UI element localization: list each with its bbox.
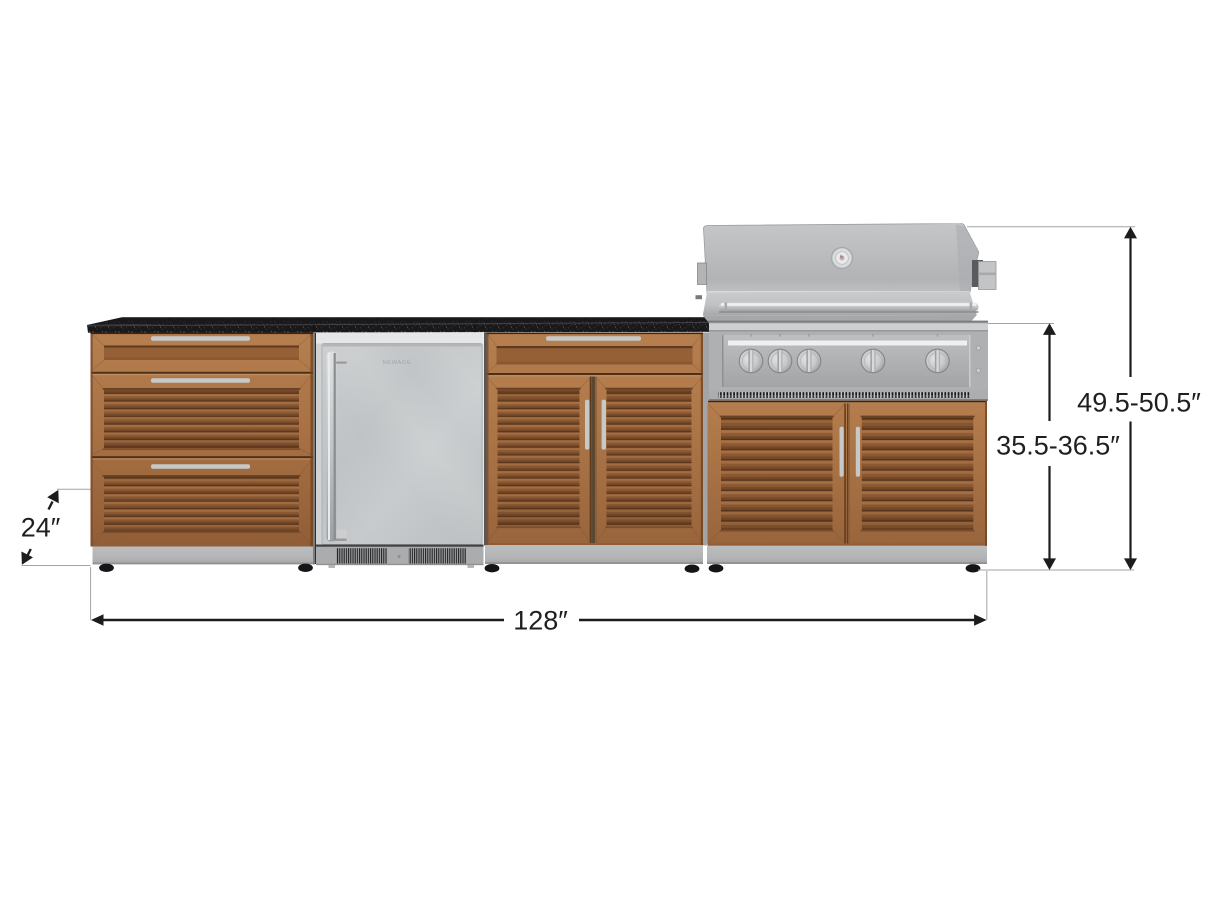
- svg-text:NEWAGE: NEWAGE: [383, 360, 412, 366]
- svg-text:24″: 24″: [21, 513, 61, 543]
- svg-text:49.5-50.5″: 49.5-50.5″: [1077, 388, 1201, 418]
- svg-text:35.5-36.5″: 35.5-36.5″: [996, 431, 1120, 461]
- svg-text:128″: 128″: [513, 606, 568, 636]
